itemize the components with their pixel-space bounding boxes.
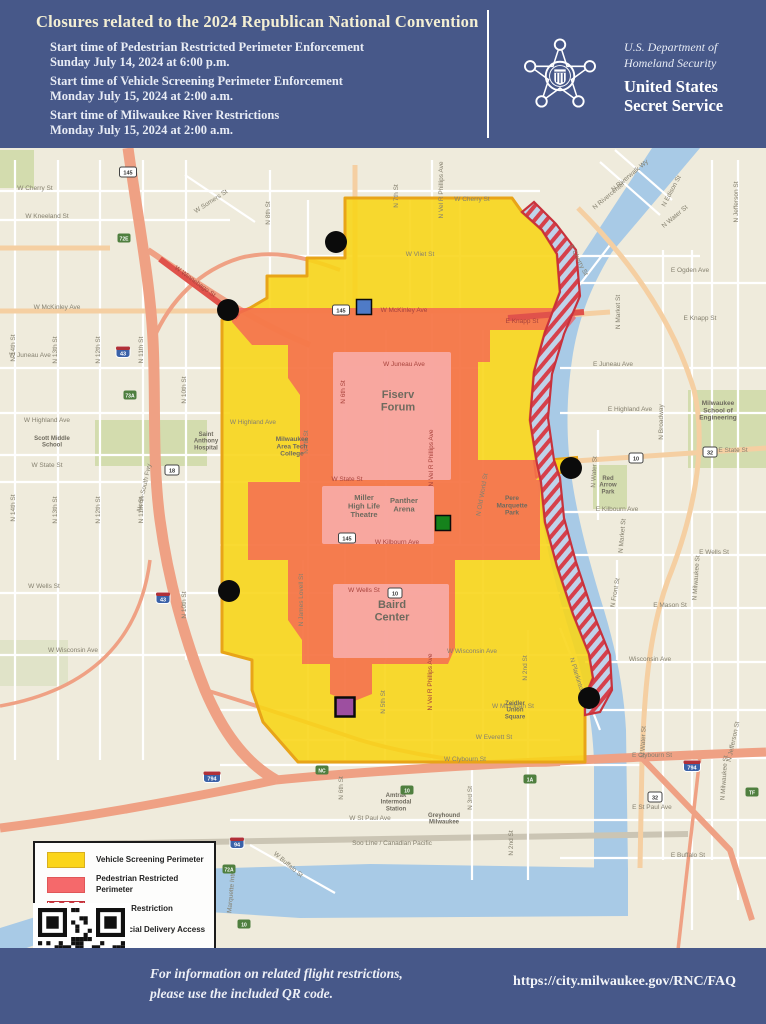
interstate-route-shield: 794 bbox=[204, 772, 221, 783]
enforcement-label: Start time of Pedestrian Restricted Peri… bbox=[50, 40, 364, 55]
street-label: E Ogden Ave bbox=[671, 267, 710, 274]
street-label: Soo Line / Canadian Pacific bbox=[352, 840, 433, 847]
enforcement-item: Start time of Milwaukee River Restrictio… bbox=[50, 108, 279, 139]
secret-service-star-icon bbox=[522, 38, 598, 114]
svg-text:1A: 1A bbox=[527, 777, 534, 783]
street-label: E Mason St bbox=[653, 602, 687, 609]
svg-text:TF: TF bbox=[749, 790, 755, 796]
venue-label: MilwaukeeArea TechCollege bbox=[276, 436, 309, 458]
svg-text:32: 32 bbox=[652, 796, 658, 802]
street-label: N 6th St bbox=[338, 776, 345, 800]
street-label: N 11th St bbox=[138, 337, 145, 364]
interstate-route-shield: 43 bbox=[116, 347, 130, 358]
street-label: E Wells St bbox=[699, 549, 729, 556]
closure-map: W Cherry StW Cherry StW Kneeland StW Som… bbox=[0, 148, 766, 948]
svg-text:10: 10 bbox=[633, 457, 639, 463]
street-label: W McKinley Ave bbox=[381, 307, 428, 314]
dept-line2: Homeland Security bbox=[624, 56, 723, 72]
street-label: N 14th St bbox=[10, 494, 17, 521]
street-label: E Buffalo St bbox=[671, 852, 705, 859]
svg-text:43: 43 bbox=[120, 352, 126, 358]
street-label: N 10th St bbox=[181, 591, 188, 618]
street-label: N 2nd St bbox=[522, 655, 529, 680]
map-canvas: W Cherry StW Cherry StW Kneeland StW Som… bbox=[0, 148, 766, 948]
green-route-shield: 1A bbox=[524, 775, 537, 784]
street-label: W Wisconsin Ave bbox=[48, 647, 98, 654]
street-label: N 14th St bbox=[10, 334, 17, 361]
street-label: E Highland Ave bbox=[608, 406, 653, 413]
footer: For information on related flight restri… bbox=[0, 948, 766, 1024]
street-label: W St Paul Ave bbox=[349, 815, 391, 822]
svg-text:43: 43 bbox=[160, 598, 166, 604]
svg-text:72E: 72E bbox=[120, 236, 130, 242]
legend-label: Pedestrian Restricted Perimeter bbox=[96, 874, 208, 895]
street-label: E Clybourn St bbox=[632, 752, 672, 759]
street-label: N James Lovell St bbox=[298, 574, 305, 627]
us-route-shield: 145 bbox=[333, 305, 350, 315]
enforcement-label: Start time of Vehicle Screening Perimete… bbox=[50, 74, 343, 89]
shield-glyph bbox=[554, 69, 565, 85]
legend-row: Vehicle Screening Perimeter bbox=[45, 852, 208, 868]
us-route-shield: 32 bbox=[703, 447, 717, 457]
vehicle-screening-swatch bbox=[47, 852, 85, 868]
us-route-shield: 10 bbox=[629, 453, 643, 463]
street-label: N 12th St bbox=[95, 336, 102, 363]
enforcement-item: Start time of Pedestrian Restricted Peri… bbox=[50, 40, 364, 71]
street-label: W Vliet St bbox=[406, 251, 435, 258]
us-route-shield: 32 bbox=[648, 792, 662, 802]
interstate-route-shield: 794 bbox=[684, 761, 701, 772]
street-label: N 7th St bbox=[393, 184, 400, 208]
green-route-shield: 73A bbox=[124, 391, 137, 400]
street-label: W State St bbox=[331, 476, 362, 483]
street-label: W Kilbourn Ave bbox=[375, 539, 420, 546]
svg-text:73A: 73A bbox=[125, 393, 135, 399]
agency-name-line1: United States bbox=[624, 78, 723, 96]
vehicle-screening-point-marker bbox=[325, 231, 347, 253]
street-label: N 10th St bbox=[181, 376, 188, 403]
vehicle-screening-point-marker bbox=[560, 457, 582, 479]
svg-text:145: 145 bbox=[336, 309, 345, 315]
svg-text:94: 94 bbox=[234, 843, 241, 849]
enforcement-label: Start time of Milwaukee River Restrictio… bbox=[50, 108, 279, 123]
street-label: W Cherry St bbox=[454, 196, 490, 203]
enforcement-item: Start time of Vehicle Screening Perimete… bbox=[50, 74, 343, 105]
svg-text:145: 145 bbox=[123, 171, 132, 177]
vehicle-screening-point-marker bbox=[578, 687, 600, 709]
vehicle-screening-point-marker bbox=[218, 580, 240, 602]
street-label: N Vel R Phillips Ave bbox=[438, 161, 445, 218]
street-label: N Jefferson St bbox=[733, 181, 740, 222]
page-title: Closures related to the 2024 Republican … bbox=[36, 12, 479, 32]
purple-access-point-marker bbox=[336, 698, 355, 717]
svg-text:10: 10 bbox=[404, 788, 410, 794]
green-route-shield: 10 bbox=[238, 920, 251, 929]
interstate-route-shield: 94 bbox=[230, 838, 244, 849]
street-label: W Wells St bbox=[28, 583, 60, 590]
street-label: W Wells St bbox=[348, 587, 380, 594]
interstate-route-shield: 43 bbox=[156, 593, 170, 604]
venue-label: MilwaukeeSchool ofEngineering bbox=[699, 400, 737, 422]
enforcement-date: Monday July 15, 2024 at 2:00 a.m. bbox=[50, 89, 343, 104]
blue-access-point-marker bbox=[357, 300, 372, 315]
street-label: W Clybourn St bbox=[444, 756, 486, 763]
enforcement-date: Monday July 15, 2024 at 2:00 a.m. bbox=[50, 123, 279, 138]
header-divider bbox=[487, 10, 489, 138]
us-route-shield: 145 bbox=[339, 533, 356, 543]
venue-label: BairdCenter bbox=[375, 599, 411, 623]
street-label: E St Paul Ave bbox=[632, 804, 672, 811]
svg-text:145: 145 bbox=[342, 537, 351, 543]
street-label: N Vel R Phillips Ave bbox=[428, 429, 435, 486]
street-label: W Everett St bbox=[476, 734, 513, 741]
street-label: N Market St bbox=[615, 295, 622, 330]
street-label: E Juneau Ave bbox=[593, 361, 633, 368]
svg-text:794: 794 bbox=[207, 777, 217, 783]
poster: Closures related to the 2024 Republican … bbox=[0, 0, 766, 1024]
street-label: N 13th St bbox=[52, 496, 59, 523]
green-route-shield: TF bbox=[746, 788, 759, 797]
street-label: N Water St bbox=[639, 726, 647, 758]
us-route-shield: 10 bbox=[388, 588, 402, 598]
us-route-shield: 18 bbox=[165, 465, 179, 475]
header: Closures related to the 2024 Republican … bbox=[0, 0, 766, 148]
street-label: N 6th St bbox=[340, 380, 347, 404]
street-label: W McKinley Ave bbox=[34, 304, 81, 311]
street-label: N 13th St bbox=[52, 336, 59, 363]
svg-text:10: 10 bbox=[392, 592, 398, 598]
street-label: W Wisconsin Ave bbox=[447, 648, 497, 655]
us-route-shield: 145 bbox=[120, 167, 137, 177]
street-label: E Knapp St bbox=[684, 315, 717, 322]
pedestrian-restricted-swatch bbox=[47, 877, 85, 893]
flight-restriction-note: For information on related flight restri… bbox=[150, 964, 403, 1005]
street-label: W Kneeland St bbox=[25, 213, 69, 220]
venue-label: ZeidlerUnionSquare bbox=[505, 701, 526, 720]
faq-url: https://city.milwaukee.gov/RNC/FAQ bbox=[513, 974, 736, 990]
svg-text:NC: NC bbox=[318, 768, 326, 774]
green-route-shield: 72E bbox=[118, 234, 131, 243]
street-label: W Cherry St bbox=[17, 185, 53, 192]
green-route-shield: 72A bbox=[223, 865, 236, 874]
street-label: N 3rd St bbox=[467, 786, 474, 810]
venue-label: GreyhoundMilwaukee bbox=[428, 813, 460, 826]
street-label: E Kilbourn Ave bbox=[596, 506, 639, 513]
agency-name-line2: Secret Service bbox=[624, 97, 723, 115]
street-label: W Highland Ave bbox=[24, 417, 71, 424]
enforcement-date: Sunday July 14, 2024 at 6:00 p.m. bbox=[50, 55, 364, 70]
street-label: N 8th St bbox=[265, 201, 272, 225]
dept-line1: U.S. Department of bbox=[624, 40, 723, 56]
street-label: W State St bbox=[31, 462, 62, 469]
street-label: Wisconsin Ave bbox=[629, 656, 672, 663]
vehicle-screening-point-marker bbox=[217, 299, 239, 321]
svg-text:10: 10 bbox=[241, 922, 247, 928]
legend-row: Pedestrian Restricted Perimeter bbox=[45, 874, 208, 895]
svg-text:72A: 72A bbox=[224, 867, 234, 873]
street-label: W Highland Ave bbox=[230, 419, 277, 426]
green-route-shield: 10 bbox=[401, 786, 414, 795]
green-access-point-marker bbox=[436, 516, 451, 531]
street-label: N Vel R Phillips Ave bbox=[427, 653, 434, 710]
green-route-shield: NC bbox=[316, 766, 329, 775]
legend-label: Vehicle Screening Perimeter bbox=[96, 855, 204, 865]
agency-block: U.S. Department of Homeland Security Uni… bbox=[624, 40, 723, 115]
street-label: W Juneau Ave bbox=[383, 361, 425, 368]
svg-text:794: 794 bbox=[687, 766, 697, 772]
svg-text:32: 32 bbox=[707, 451, 713, 457]
svg-text:18: 18 bbox=[169, 469, 175, 475]
street-label: N 2nd St bbox=[508, 830, 515, 855]
street-label: E Knapp St bbox=[506, 318, 539, 325]
venue-label: FiservForum bbox=[381, 389, 415, 413]
street-label: N Broadway bbox=[658, 404, 665, 440]
venue-label: PantherArena bbox=[390, 496, 418, 513]
street-label: N 5th St bbox=[380, 690, 387, 714]
street-label: N 12th St bbox=[95, 496, 102, 523]
street-label: E State St bbox=[718, 447, 747, 454]
